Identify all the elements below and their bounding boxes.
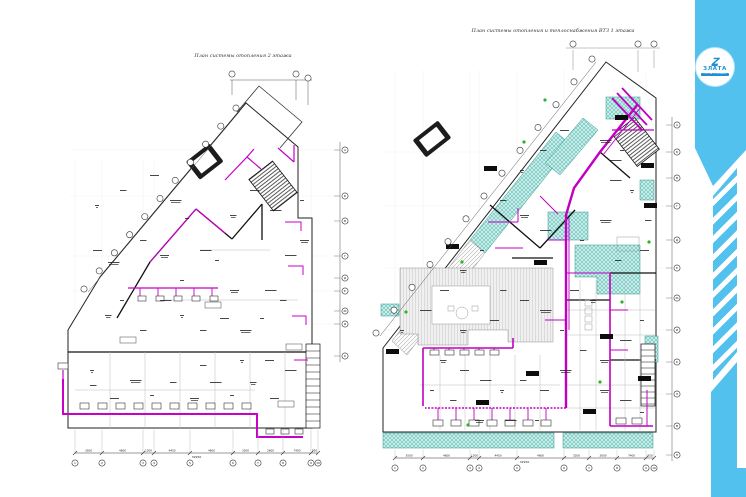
annotation-text bbox=[610, 160, 622, 161]
left-building-outline bbox=[68, 103, 312, 428]
axis-bubble bbox=[233, 105, 239, 111]
annotation-text bbox=[520, 380, 527, 381]
annotation-text bbox=[640, 412, 644, 413]
radiator bbox=[242, 403, 251, 409]
annotation-text bbox=[250, 382, 257, 383]
axis-bubble-label: 5 bbox=[516, 466, 518, 470]
annotation-text bbox=[490, 320, 499, 321]
right-side-stair bbox=[641, 344, 655, 406]
annotation-text bbox=[210, 382, 222, 383]
axis-bubble-label: 7 bbox=[588, 466, 590, 470]
annotation-text bbox=[200, 330, 207, 331]
axis-bubble bbox=[409, 284, 415, 290]
radiator bbox=[192, 296, 200, 301]
radiator bbox=[632, 418, 642, 424]
annotation-text bbox=[270, 398, 279, 399]
annotation-text bbox=[460, 270, 467, 271]
annotation-text bbox=[230, 215, 237, 216]
annotation-text bbox=[520, 170, 524, 171]
annotation-text bbox=[300, 240, 309, 241]
axis-bubble bbox=[229, 71, 235, 77]
axis-bubble-label: 1 bbox=[394, 466, 396, 470]
radiator bbox=[523, 420, 533, 426]
axis-bubble bbox=[535, 124, 541, 130]
radiator bbox=[58, 363, 68, 369]
axis-bubble-label: 6 bbox=[563, 466, 565, 470]
axis-bubble-label: 3 bbox=[469, 466, 471, 470]
radiator bbox=[170, 403, 179, 409]
dimension-value: 1200 bbox=[471, 453, 478, 457]
annotation-text bbox=[610, 180, 622, 181]
annotation-text bbox=[500, 290, 507, 291]
axis-bubble bbox=[589, 56, 595, 62]
radiator bbox=[475, 350, 484, 355]
axis-bubble-label: И bbox=[344, 322, 346, 326]
axis-bubble bbox=[635, 41, 641, 47]
annotation-text bbox=[280, 300, 287, 301]
annotation-text bbox=[430, 390, 434, 391]
annotation-text bbox=[480, 380, 492, 381]
axis-bubble bbox=[142, 214, 148, 220]
left-plan-title: План системы отопления 2 этажа bbox=[193, 53, 291, 59]
annotation-text bbox=[600, 390, 609, 391]
axis-bubble-label: Н bbox=[676, 453, 678, 457]
radiator bbox=[80, 403, 89, 409]
axis-bubble bbox=[111, 250, 117, 256]
right-plan-title: План системы отопления и теплоснабжения … bbox=[470, 27, 634, 34]
axis-bubble-label: Г bbox=[344, 254, 346, 258]
radiator bbox=[206, 403, 215, 409]
dimension-total: 32950 bbox=[192, 455, 202, 459]
axis-bubble bbox=[651, 41, 657, 47]
annotation-text bbox=[590, 300, 597, 301]
annotation-text bbox=[580, 350, 587, 351]
radiator bbox=[174, 296, 182, 301]
dimension-value: 950 bbox=[647, 453, 653, 457]
radiator bbox=[433, 420, 443, 426]
dimension-value: 950 bbox=[312, 448, 318, 452]
annotation-text bbox=[160, 255, 169, 256]
radiator bbox=[266, 429, 274, 434]
dimension-value: 4600 bbox=[208, 448, 215, 452]
annotation-text bbox=[120, 300, 124, 301]
dimension-value: 7400 bbox=[293, 448, 300, 452]
axis-bubble-label: Л bbox=[676, 392, 678, 396]
annotation-text bbox=[540, 230, 552, 231]
axis-bubble-label: 10 bbox=[652, 466, 656, 470]
radiator bbox=[188, 403, 197, 409]
axis-bubble-label: Е bbox=[676, 266, 678, 270]
annotation-text bbox=[90, 385, 97, 386]
annotation-text bbox=[580, 240, 584, 241]
annotation-text bbox=[285, 370, 297, 371]
axis-bubble bbox=[187, 159, 193, 165]
dimension-value: 1200 bbox=[145, 448, 152, 452]
axis-bubble bbox=[463, 216, 469, 222]
annotation-text bbox=[215, 260, 219, 261]
annotation-text bbox=[620, 150, 624, 151]
axis-bubble bbox=[81, 286, 87, 292]
logo-subtitle: ГРУППА КОМПАНИЙ bbox=[701, 73, 729, 76]
radiator bbox=[134, 403, 143, 409]
axis-bubble-label: Е bbox=[344, 289, 346, 293]
annotation-text bbox=[180, 280, 184, 281]
radiator bbox=[490, 350, 499, 355]
radiator bbox=[541, 420, 551, 426]
axis-bubble bbox=[517, 147, 523, 153]
annotation-text bbox=[475, 420, 484, 421]
axis-bubble-label: 9 bbox=[645, 466, 647, 470]
dimension-value: 4450 bbox=[168, 448, 175, 452]
axis-bubble-label: И bbox=[676, 328, 678, 332]
axis-bubble-label: М bbox=[676, 424, 679, 428]
annotation-text bbox=[120, 190, 127, 191]
annotation-text bbox=[170, 382, 177, 383]
annotation-text bbox=[505, 420, 517, 421]
annotation-text bbox=[630, 190, 634, 191]
annotation-text bbox=[620, 340, 632, 341]
annotation-text bbox=[520, 215, 529, 216]
right-plan: План системы отопления и теплоснабжения … bbox=[373, 27, 680, 471]
axis-bubble-label: 5 bbox=[189, 461, 191, 465]
annotation-text bbox=[645, 220, 652, 221]
axis-bubble bbox=[293, 71, 299, 77]
annotation-text bbox=[150, 175, 159, 176]
annotation-text bbox=[500, 200, 507, 201]
axis-bubble bbox=[96, 268, 102, 274]
annotation-text bbox=[180, 315, 184, 316]
dimension-value: 3200 bbox=[573, 453, 580, 457]
dimension-value: 4600 bbox=[119, 448, 126, 452]
radiator bbox=[152, 403, 161, 409]
annotation-text bbox=[108, 262, 120, 263]
dimension-value: 2600 bbox=[599, 453, 606, 457]
radiator bbox=[138, 296, 146, 301]
radiator bbox=[451, 420, 461, 426]
annotation-text bbox=[230, 290, 239, 291]
axis-bubble bbox=[203, 141, 209, 147]
radiator bbox=[210, 296, 218, 301]
axis-bubble-label: 6 bbox=[232, 461, 234, 465]
annotation-text bbox=[240, 360, 244, 361]
axis-bubble-label: 2 bbox=[101, 461, 103, 465]
annotation-text bbox=[95, 205, 99, 206]
annotation-text bbox=[460, 330, 467, 331]
axis-bubble bbox=[218, 123, 224, 129]
axis-bubble bbox=[445, 239, 451, 245]
axis-bubble bbox=[481, 193, 487, 199]
company-logo: Z ЗЛАТА ГРУППА КОМПАНИЙ bbox=[696, 48, 734, 86]
annotation-text bbox=[600, 220, 612, 221]
annotation-text bbox=[640, 320, 644, 321]
annotation-text bbox=[190, 398, 199, 399]
annotation-text bbox=[90, 370, 94, 371]
left-plan: План системы отопления 2 этажа bbox=[58, 53, 348, 466]
annotation-text bbox=[540, 390, 549, 391]
annotation-text bbox=[170, 200, 182, 201]
annotation-text bbox=[535, 420, 539, 421]
axis-bubble bbox=[127, 232, 133, 238]
axis-bubble-label: 10 bbox=[316, 461, 320, 465]
axis-bubble-label: 4 bbox=[153, 461, 155, 465]
dimension-value: 4450 bbox=[494, 453, 501, 457]
annotation-text bbox=[240, 330, 252, 331]
axis-bubble bbox=[157, 195, 163, 201]
axis-bubble bbox=[571, 79, 577, 85]
annotation-text bbox=[265, 360, 274, 361]
annotation-text bbox=[250, 190, 259, 191]
axis-bubble-label: 1 bbox=[74, 461, 76, 465]
annotation-text bbox=[540, 310, 552, 311]
annotation-text bbox=[500, 390, 504, 391]
annotation-text bbox=[140, 240, 147, 241]
axis-bubble-label: 8 bbox=[616, 466, 618, 470]
annotation-text bbox=[620, 400, 632, 401]
annotation-text bbox=[460, 370, 469, 371]
axis-bubble-label: 4 bbox=[478, 466, 480, 470]
annotation-text bbox=[440, 360, 447, 361]
dimension-value: 4600 bbox=[443, 453, 450, 457]
annotation-text bbox=[230, 395, 234, 396]
annotation-text bbox=[440, 290, 449, 291]
annotation-text bbox=[560, 130, 569, 131]
annotation-text bbox=[93, 250, 102, 251]
dimension-value: 7400 bbox=[628, 453, 635, 457]
annotation-text bbox=[300, 200, 304, 201]
axis-bubble-label: 3 bbox=[142, 461, 144, 465]
annotation-text bbox=[640, 250, 649, 251]
axis-bubble bbox=[172, 177, 178, 183]
annotation-text bbox=[185, 218, 189, 219]
axis-bubble-label: Б bbox=[344, 194, 346, 198]
axis-bubble-label: 8 bbox=[282, 461, 284, 465]
axis-bubble bbox=[427, 261, 433, 267]
axis-bubble-label: 2 bbox=[422, 466, 424, 470]
annotation-text bbox=[150, 395, 154, 396]
radiator bbox=[487, 420, 497, 426]
annotation-text bbox=[270, 210, 282, 211]
radiator bbox=[295, 429, 303, 434]
annotation-text bbox=[570, 290, 579, 291]
annotation-text bbox=[110, 398, 119, 399]
axis-bubble-label: 9 bbox=[310, 461, 312, 465]
axis-bubble-label: В bbox=[676, 176, 678, 180]
axis-bubble-label: Г bbox=[676, 204, 678, 208]
axis-bubble bbox=[570, 41, 576, 47]
annotation-text bbox=[615, 260, 622, 261]
annotation-text bbox=[140, 330, 147, 331]
annotation-text bbox=[200, 365, 207, 366]
radiator bbox=[224, 403, 233, 409]
floor-plans-drawing: План системы отопления 2 этажа bbox=[0, 0, 746, 497]
radiator bbox=[281, 429, 289, 434]
annotation-text bbox=[265, 290, 277, 291]
annotation-text bbox=[260, 318, 264, 319]
axis-bubble-label: 7 bbox=[257, 461, 259, 465]
annotation-text bbox=[520, 300, 529, 301]
annotation-text bbox=[600, 140, 612, 141]
dimension-value: 3500 bbox=[405, 453, 412, 457]
annotation-text bbox=[220, 318, 229, 319]
annotation-text bbox=[285, 255, 297, 256]
axis-bubble-label: В bbox=[344, 219, 346, 223]
annotation-text bbox=[400, 330, 404, 331]
dimension-value: 3500 bbox=[85, 448, 92, 452]
radiator bbox=[460, 350, 469, 355]
radiator bbox=[430, 350, 439, 355]
axis-bubble bbox=[499, 170, 505, 176]
dimension-total: 32950 bbox=[520, 460, 530, 464]
annotation-text bbox=[540, 150, 547, 151]
annotation-text bbox=[130, 380, 142, 381]
axis-bubble-label: Б bbox=[676, 150, 678, 154]
annotation-text bbox=[105, 315, 112, 316]
dimension-value: 4600 bbox=[537, 453, 544, 457]
radiator bbox=[98, 403, 107, 409]
drawing-sheet: План системы отопления 2 этажа bbox=[0, 0, 746, 497]
annotation-text bbox=[480, 250, 484, 251]
annotation-text bbox=[600, 360, 609, 361]
axis-bubble bbox=[553, 102, 559, 108]
annotation-text bbox=[160, 300, 172, 301]
radiator bbox=[445, 350, 454, 355]
radiator bbox=[616, 418, 626, 424]
logo-z-icon: Z bbox=[711, 58, 718, 66]
radiator bbox=[116, 403, 125, 409]
dimension-value: 3200 bbox=[242, 448, 249, 452]
dimension-value: 2600 bbox=[267, 448, 274, 452]
annotation-text bbox=[420, 310, 432, 311]
axis-bubble bbox=[305, 75, 311, 81]
axis-bubble bbox=[373, 330, 379, 336]
annotation-text bbox=[560, 370, 572, 371]
annotation-text bbox=[450, 400, 457, 401]
annotation-text bbox=[560, 330, 564, 331]
axis-bubble bbox=[391, 307, 397, 313]
annotation-text bbox=[200, 250, 212, 251]
